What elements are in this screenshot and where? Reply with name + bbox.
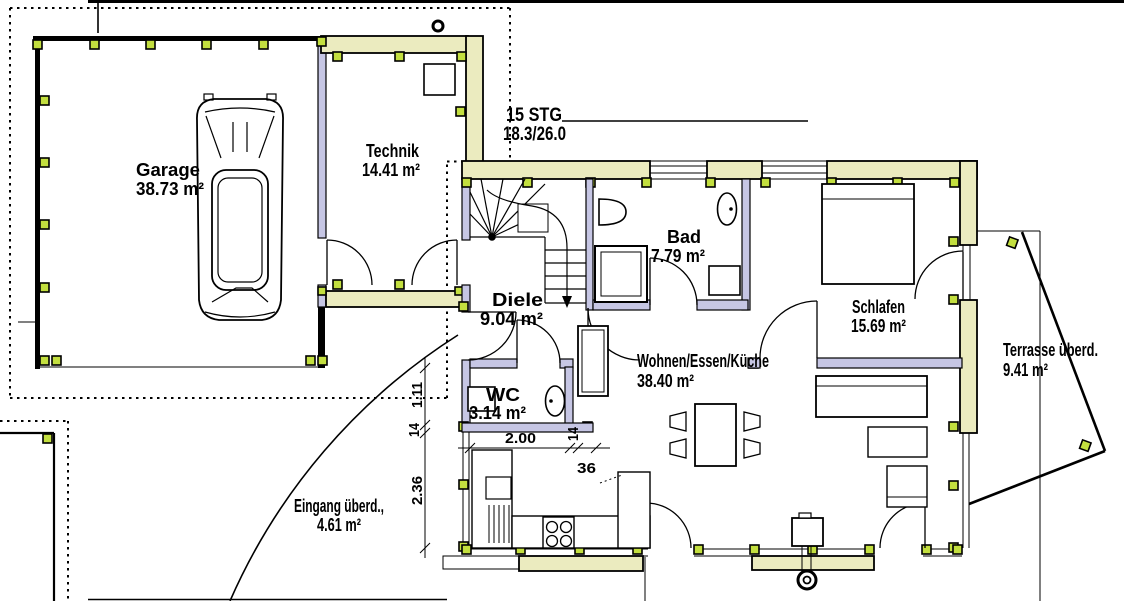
terrace xyxy=(969,231,1105,601)
room-area-wc: 3.14 m² xyxy=(469,403,526,423)
room-area-diele: 9.04 m² xyxy=(480,309,543,329)
tall-cabinet xyxy=(618,472,650,548)
neighbor-building-corner xyxy=(0,421,68,601)
dim-1-11: 1.11 xyxy=(409,382,426,408)
stair-direction-arrow xyxy=(562,296,572,308)
dim-14-h: 14 xyxy=(565,426,582,441)
stair-east-wall xyxy=(586,179,593,310)
room-area-bad: 7.79 m² xyxy=(651,246,705,266)
stair-rise-run-label: 18.3/26.0 xyxy=(503,124,566,145)
garage-walls xyxy=(18,36,326,369)
boiler xyxy=(424,64,455,95)
stair-steps-label: 15 STG xyxy=(506,105,562,126)
dim-2-00: 2.00 xyxy=(505,430,536,447)
bath-cabinet xyxy=(709,266,740,295)
room-label-garage: Garage xyxy=(136,160,200,180)
chair xyxy=(744,439,760,458)
terrace-post xyxy=(1007,237,1019,249)
room-labels: Garage 38.73 m² Technik 14.41 m² Diele 9… xyxy=(136,141,1098,535)
fridge xyxy=(486,477,511,499)
coffee-table xyxy=(868,427,927,457)
room-label-wohnen: Wohnen/Essen/Küche xyxy=(637,351,769,371)
room-label-wc: WC xyxy=(486,385,520,405)
washbasin xyxy=(599,199,626,225)
staircase xyxy=(470,179,586,308)
pantry-cabinet xyxy=(578,326,608,396)
room-area-eingang: 4.61 m² xyxy=(317,515,361,535)
terrace-post xyxy=(1080,440,1092,452)
floor-plan-svg: Garage 38.73 m² Technik 14.41 m² Diele 9… xyxy=(0,0,1124,601)
floor-plan: Garage 38.73 m² Technik 14.41 m² Diele 9… xyxy=(0,0,1124,601)
wc-east-wall xyxy=(565,367,573,428)
room-area-garage: 38.73 m² xyxy=(136,179,204,199)
post xyxy=(43,434,52,443)
chair xyxy=(670,439,686,458)
post xyxy=(317,37,326,46)
room-area-schlafen: 15.69 m² xyxy=(851,316,906,336)
shower xyxy=(595,246,647,302)
room-label-diele: Diele xyxy=(492,290,543,310)
room-area-wohnen: 38.40 m² xyxy=(637,371,694,391)
room-area-technik: 14.41 m² xyxy=(362,160,420,180)
toilet-bad xyxy=(718,193,737,225)
room-label-eingang: Eingang überd., xyxy=(294,496,384,516)
armchair xyxy=(887,466,927,507)
room-label-technik: Technik xyxy=(366,141,420,161)
door-schlafen-terrace xyxy=(915,251,963,299)
technik-fixtures xyxy=(424,21,455,95)
chair xyxy=(670,412,686,431)
door-technik-hall xyxy=(412,240,457,285)
door-kitchen-outside xyxy=(646,503,691,548)
dining-set xyxy=(670,404,760,466)
stair-note: 15 STG 18.3/26.0 xyxy=(503,105,566,145)
chair xyxy=(744,412,760,431)
door-garage-technik xyxy=(327,240,372,285)
stair-newel-dot xyxy=(489,234,495,240)
dim-2-36: 2.36 xyxy=(409,476,426,505)
entrance-canopy-arc xyxy=(230,335,458,601)
bad-east-wall xyxy=(742,179,750,310)
toilet-wc xyxy=(546,386,565,416)
door-schlafen xyxy=(760,301,817,358)
room-label-bad: Bad xyxy=(667,227,701,247)
room-label-schlafen: Schlafen xyxy=(852,297,905,317)
sofa xyxy=(816,376,927,417)
car xyxy=(197,94,283,320)
dim-14-v: 14 xyxy=(406,422,423,437)
door-living-terrace xyxy=(880,503,925,548)
wc-north-wall xyxy=(470,359,517,368)
vent-pipe xyxy=(433,21,443,31)
bedroom-furniture xyxy=(822,184,914,284)
room-area-terrasse: 9.41 m² xyxy=(1003,360,1048,380)
room-label-terrasse: Terrasse überd. xyxy=(1003,340,1098,360)
dim-36: 36 xyxy=(577,460,596,477)
dining-table xyxy=(695,404,736,466)
